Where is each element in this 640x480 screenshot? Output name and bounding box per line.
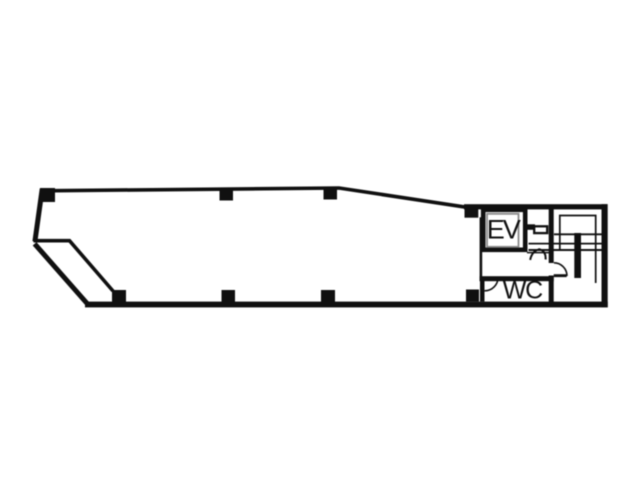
svg-text:WC: WC <box>503 277 543 305</box>
svg-text:EV: EV <box>487 215 521 245</box>
